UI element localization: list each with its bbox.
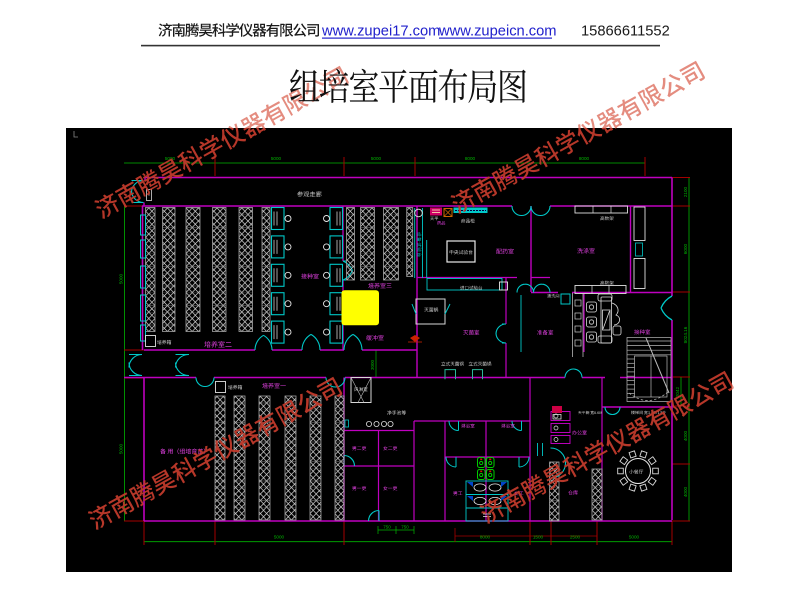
svg-text:5000: 5000 (629, 535, 640, 540)
svg-text:8000: 8000 (579, 156, 590, 161)
svg-text:www.zupei17.com: www.zupei17.com (321, 24, 440, 40)
svg-text:5000: 5000 (271, 156, 282, 161)
svg-text:5000: 5000 (119, 273, 124, 284)
svg-text:1500: 1500 (533, 535, 544, 540)
svg-text:750: 750 (401, 525, 409, 530)
svg-text:5000: 5000 (371, 156, 382, 161)
svg-text:8024.16: 8024.16 (683, 326, 688, 343)
svg-text:8000: 8000 (480, 535, 491, 540)
svg-text:www.zupeicn.com: www.zupeicn.com (438, 24, 557, 40)
svg-text:4000: 4000 (683, 486, 688, 497)
svg-text:5000: 5000 (119, 443, 124, 454)
svg-text:4000: 4000 (683, 430, 688, 441)
svg-text:3000: 3000 (370, 359, 375, 370)
svg-text:2042: 2042 (675, 386, 680, 397)
svg-text:750: 750 (383, 525, 391, 530)
svg-text:6000: 6000 (683, 243, 688, 254)
svg-text:2100: 2100 (683, 186, 688, 197)
svg-text:5000: 5000 (274, 535, 285, 540)
svg-text:2500: 2500 (570, 535, 581, 540)
svg-text:8000: 8000 (465, 156, 476, 161)
svg-text:15866611552: 15866611552 (581, 24, 670, 40)
